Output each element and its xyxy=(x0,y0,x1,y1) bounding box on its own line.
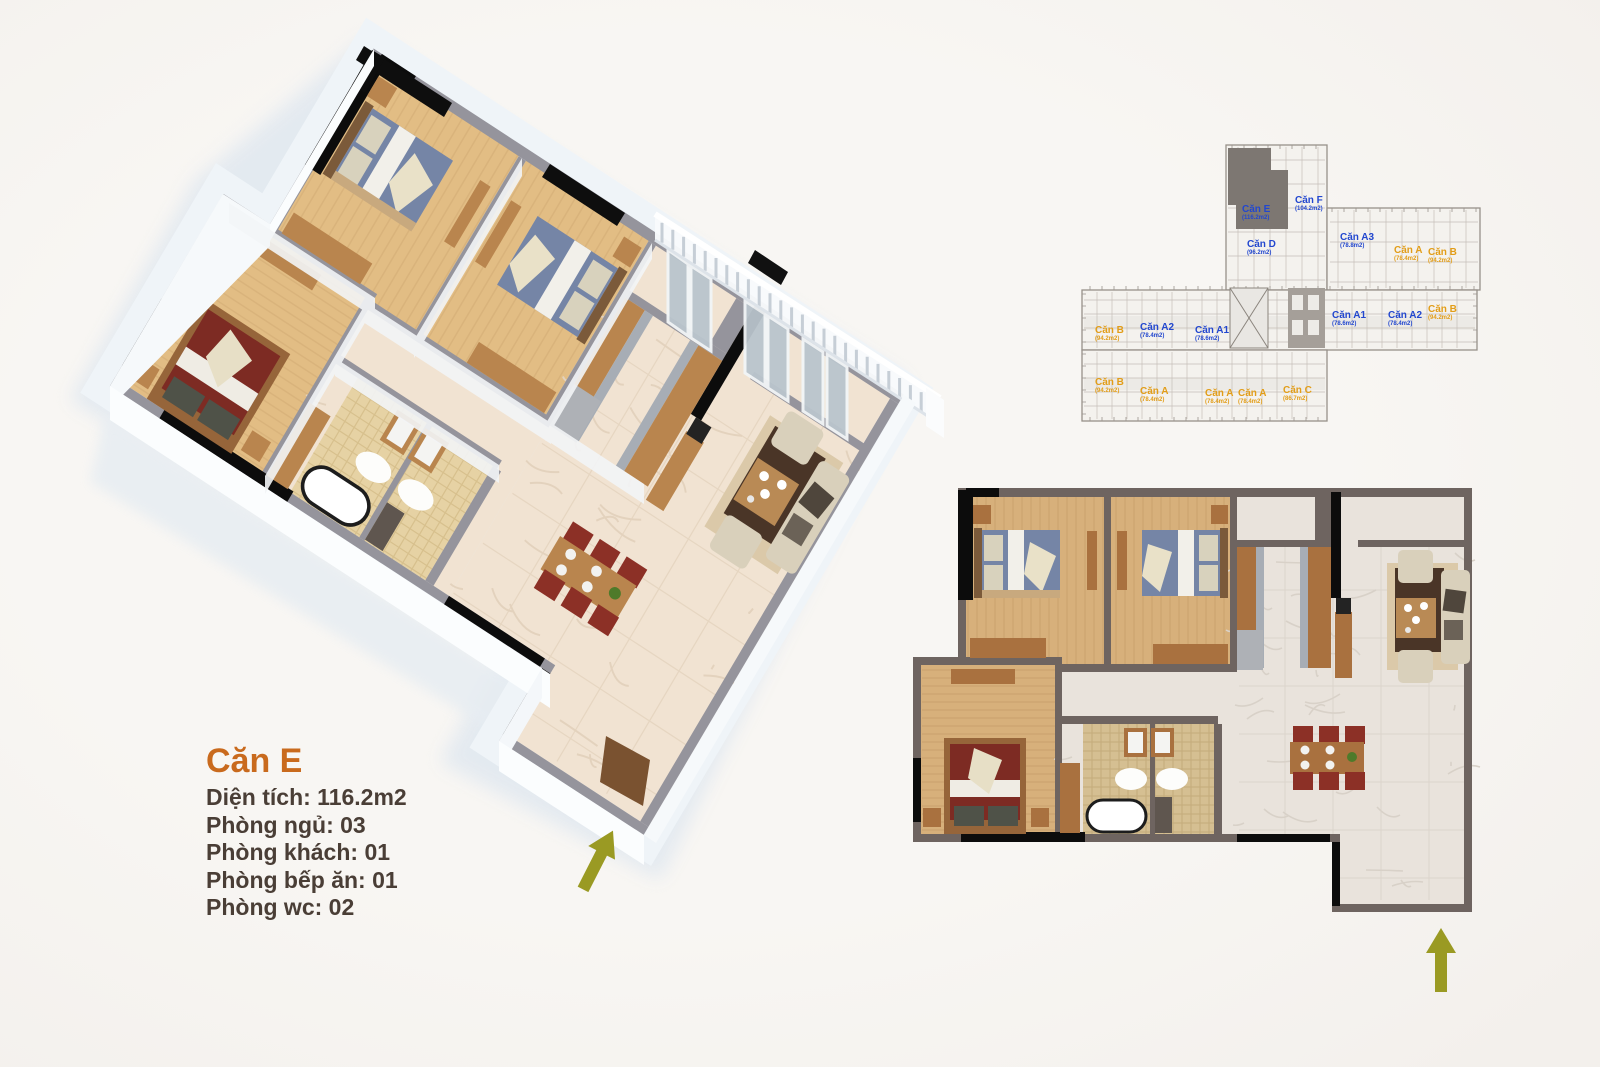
svg-text:Căn A3: Căn A3 xyxy=(1340,232,1375,243)
svg-text:(78.4m2): (78.4m2) xyxy=(1205,399,1229,405)
svg-text:(78.4m2): (78.4m2) xyxy=(1140,397,1164,403)
svg-text:(94.2m2): (94.2m2) xyxy=(1095,336,1119,342)
svg-text:Căn B: Căn B xyxy=(1095,325,1124,336)
svg-text:Căn A: Căn A xyxy=(1140,386,1169,397)
svg-text:Căn B: Căn B xyxy=(1095,377,1124,388)
svg-text:Căn E: Căn E xyxy=(1242,204,1271,215)
svg-text:Căn C: Căn C xyxy=(1283,385,1312,396)
svg-text:(116.2m2): (116.2m2) xyxy=(1242,215,1269,221)
svg-text:Căn B: Căn B xyxy=(1428,247,1457,258)
svg-text:(86.7m2): (86.7m2) xyxy=(1283,396,1307,402)
svg-text:Căn A1: Căn A1 xyxy=(1195,325,1230,336)
svg-text:(96.2m2): (96.2m2) xyxy=(1247,250,1271,256)
svg-text:Căn A2: Căn A2 xyxy=(1140,322,1175,333)
svg-text:(104.2m2): (104.2m2) xyxy=(1295,206,1323,212)
svg-text:(94.2m2): (94.2m2) xyxy=(1428,258,1452,264)
svg-text:(78.8m2): (78.8m2) xyxy=(1340,243,1364,249)
svg-text:Căn F: Căn F xyxy=(1295,195,1323,206)
svg-text:Căn D: Căn D xyxy=(1247,239,1276,250)
svg-text:(78.4m2): (78.4m2) xyxy=(1388,321,1412,327)
svg-text:Căn A: Căn A xyxy=(1238,388,1267,399)
svg-text:(78.4m2): (78.4m2) xyxy=(1238,399,1262,405)
svg-text:(78.6m2): (78.6m2) xyxy=(1195,336,1219,342)
svg-text:(78.4m2): (78.4m2) xyxy=(1140,333,1164,339)
svg-text:(78.4m2): (78.4m2) xyxy=(1394,256,1418,262)
svg-text:(78.6m2): (78.6m2) xyxy=(1332,321,1356,327)
svg-text:(94.2m2): (94.2m2) xyxy=(1428,315,1452,321)
svg-text:Căn A1: Căn A1 xyxy=(1332,310,1367,321)
svg-text:Căn A: Căn A xyxy=(1394,245,1423,256)
svg-text:Căn A: Căn A xyxy=(1205,388,1234,399)
svg-text:Căn A2: Căn A2 xyxy=(1388,310,1423,321)
svg-text:Căn B: Căn B xyxy=(1428,304,1457,315)
svg-text:(94.2m2): (94.2m2) xyxy=(1095,388,1119,394)
